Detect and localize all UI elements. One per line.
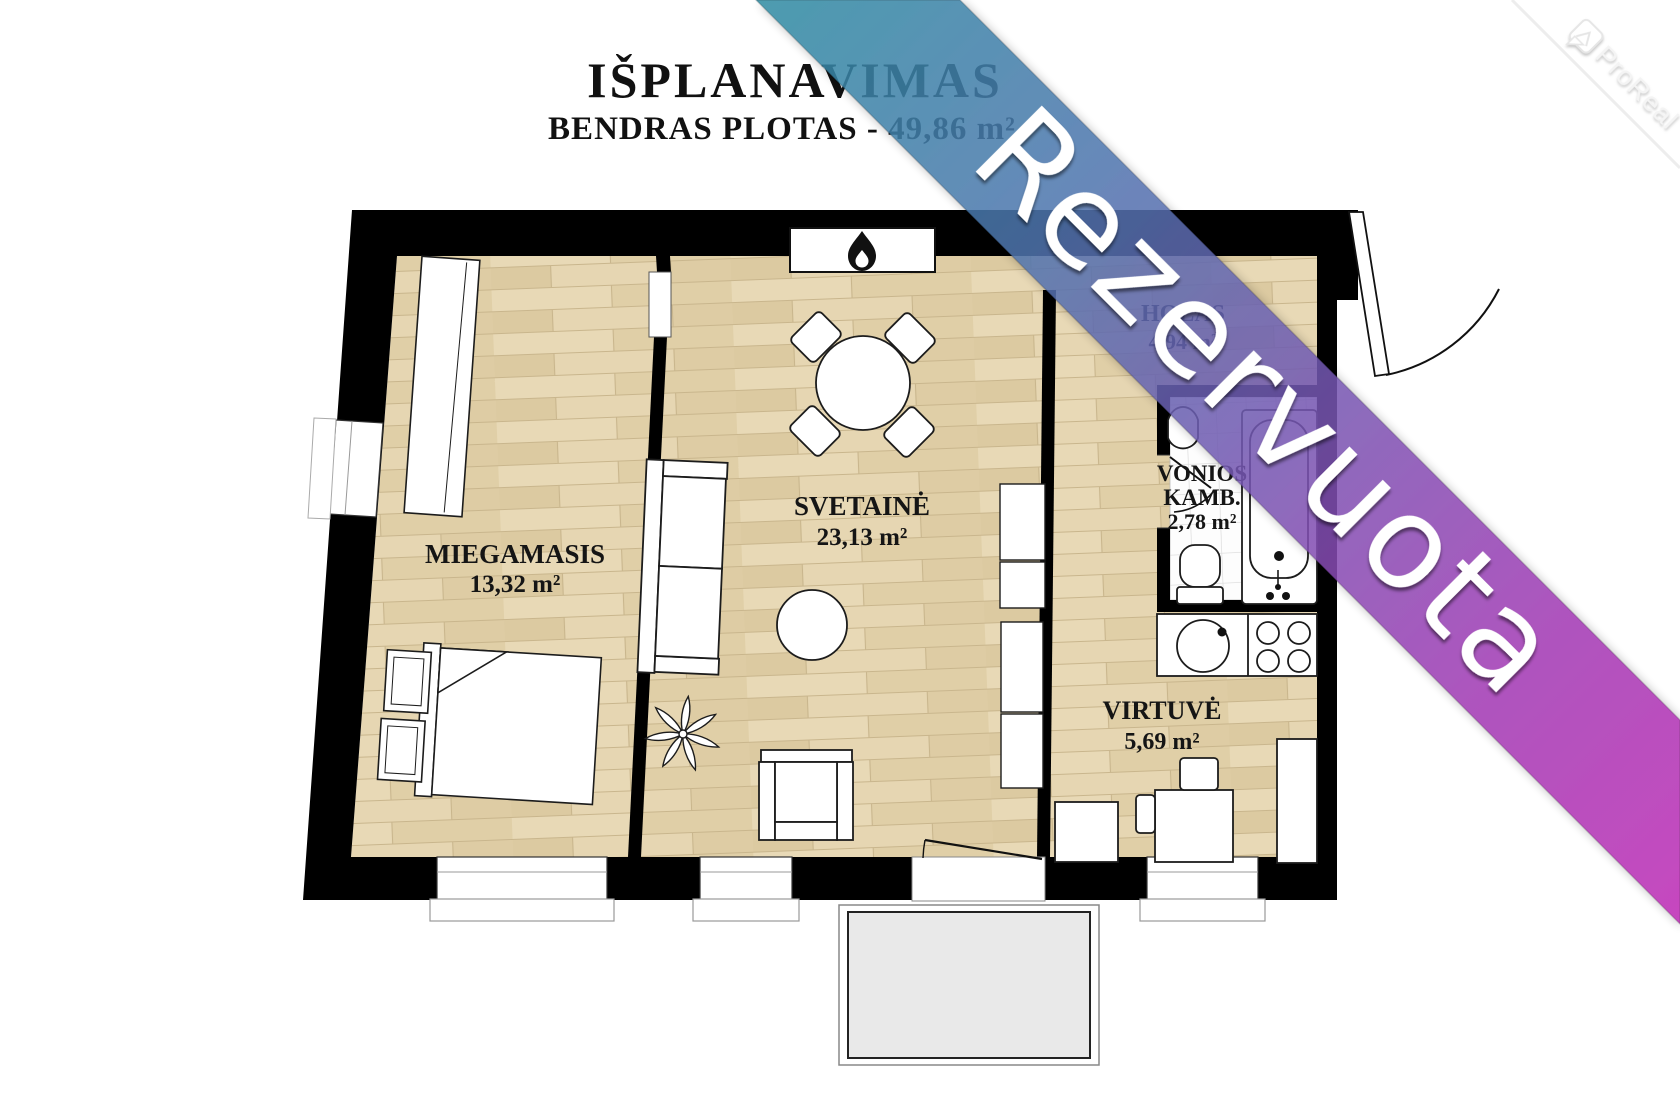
floor-plan-svg: IŠPLANAVIMAS BENDRAS PLOTAS - 49,86 m² [0,0,1680,1120]
double-bed [377,641,602,807]
floor-plan-page: IŠPLANAVIMAS BENDRAS PLOTAS - 49,86 m² [0,0,1680,1120]
sofa [637,459,727,675]
fridge [1277,739,1317,863]
coffee-table [777,590,847,660]
kitchen-table [1155,790,1233,862]
label-bathroom-area: 2,78 m² [1168,509,1237,534]
kitchen-cabinet [1055,802,1118,862]
tv-cabinets [1000,484,1045,788]
label-bathroom-2: KAMB. [1163,485,1240,510]
window-kitchen [1140,857,1265,921]
window-bedroom-left [308,418,383,519]
fireplace [790,228,935,272]
label-bedroom: MIEGAMASIS [425,539,605,569]
kitchen-chair [1180,758,1218,790]
label-bedroom-area: 13,32 m² [470,571,561,598]
dining-table [816,336,910,430]
label-living: SVETAINĖ [794,491,930,521]
window-living [693,857,799,921]
label-kitchen: VIRTUVĖ [1103,696,1222,725]
kitchen-chair [1136,795,1155,833]
toilet [1177,545,1223,604]
armchair [759,750,853,840]
kitchen-counter [1157,614,1317,676]
bedroom-doorway [649,272,671,337]
wall-bathroom-left-lower [1157,528,1170,612]
window-bedroom [430,857,614,921]
label-kitchen-area: 5,69 m² [1124,729,1199,755]
label-living-area: 23,13 m² [817,524,908,551]
wall-bedroom-stub [656,256,671,272]
balcony-doorway [912,857,1045,901]
